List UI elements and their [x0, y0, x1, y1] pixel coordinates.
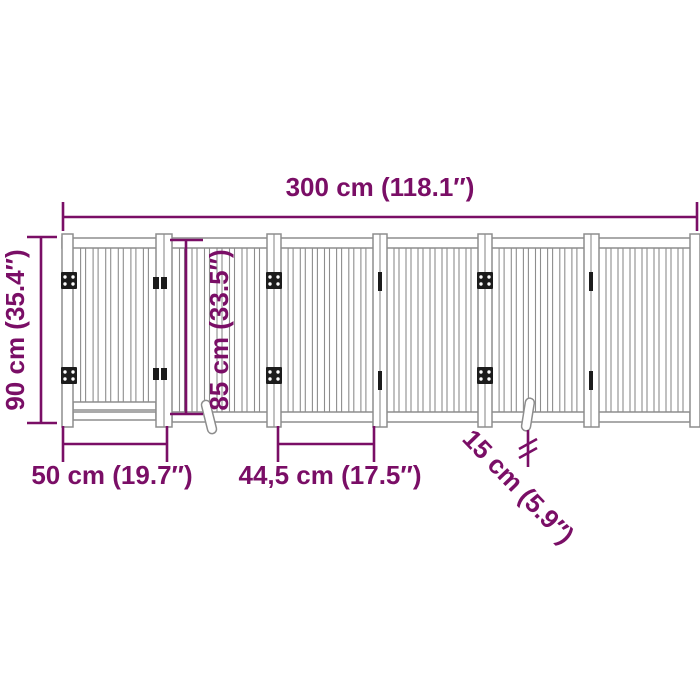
- hinge-plate: [266, 367, 282, 384]
- overall-height-label: 90 cm (35.4″): [0, 249, 30, 410]
- fence-slat: [536, 248, 541, 412]
- fence-slat: [106, 248, 111, 402]
- gate-width-dimension: 50 cm (19.7″): [31, 426, 192, 490]
- fence-slat: [406, 248, 411, 412]
- fence-slat: [630, 248, 635, 412]
- fence-slat: [325, 248, 330, 412]
- hinge-pin: [378, 371, 382, 390]
- gate-bottom-rail: [73, 402, 156, 410]
- hinge-plate: [477, 272, 493, 289]
- fence-slat: [442, 248, 447, 412]
- fence-slat: [255, 248, 260, 412]
- fence-posts: [62, 234, 700, 427]
- fence-drawing: [61, 234, 700, 435]
- fence-post: [62, 234, 73, 427]
- total-width-label: 300 cm (118.1″): [286, 172, 475, 202]
- fence-slat: [288, 248, 293, 412]
- fence-slat: [242, 248, 247, 412]
- panel-width-dimension: 44,5 cm (17.5″): [238, 426, 421, 490]
- fence-slat: [618, 248, 623, 412]
- hinge-plate: [61, 272, 77, 289]
- fence-slat: [560, 248, 565, 412]
- dimension-diagram: 300 cm (118.1″) 90 cm (35.4″) 85 cm (33.…: [0, 0, 700, 700]
- fence-slat: [361, 248, 366, 412]
- fence-slat: [466, 248, 471, 412]
- overall-height-dimension: 90 cm (35.4″): [0, 237, 57, 423]
- fence-slat: [349, 248, 354, 412]
- fence-slat: [430, 248, 435, 412]
- inner-height-label: 85 cm (33.5″): [204, 249, 234, 410]
- bottom-rail: [172, 412, 690, 422]
- fence-slat: [678, 248, 683, 412]
- fence-slat: [81, 248, 86, 402]
- fence-slat: [654, 248, 659, 412]
- fence-slat: [454, 248, 459, 412]
- fence-slat: [118, 248, 123, 402]
- fence-post: [690, 234, 700, 427]
- fence-slat: [499, 248, 504, 412]
- fence-slat: [642, 248, 647, 412]
- hinge-plate: [266, 272, 282, 289]
- fence-slat: [192, 248, 197, 412]
- fence-slat: [511, 248, 516, 412]
- fence-slat: [93, 248, 98, 402]
- fence-slat: [572, 248, 577, 412]
- fence-slat: [337, 248, 342, 412]
- fence-slat: [131, 248, 136, 402]
- fence-slat: [606, 248, 611, 412]
- panel-width-label: 44,5 cm (17.5″): [238, 460, 421, 490]
- hinge-pin: [589, 272, 593, 291]
- fence-slat: [300, 248, 305, 412]
- fence-slat: [143, 248, 148, 402]
- fence-slat: [394, 248, 399, 412]
- fence-slat: [312, 248, 317, 412]
- gate-threshold-rail: [73, 412, 156, 420]
- fence-slat: [523, 248, 528, 412]
- fence-slat: [418, 248, 423, 412]
- foot-length-dimension: 15 cm (5.9″): [457, 423, 581, 549]
- hinge-pin: [589, 371, 593, 390]
- total-width-dimension: 300 cm (118.1″): [63, 172, 697, 231]
- fence-slat: [548, 248, 553, 412]
- foot-length-label: 15 cm (5.9″): [457, 423, 581, 549]
- hinge-plate: [61, 367, 77, 384]
- gate-width-label: 50 cm (19.7″): [31, 460, 192, 490]
- hinge-pin: [378, 272, 382, 291]
- hinge-plate: [477, 367, 493, 384]
- fence-slat: [180, 248, 185, 412]
- fence-slat: [666, 248, 671, 412]
